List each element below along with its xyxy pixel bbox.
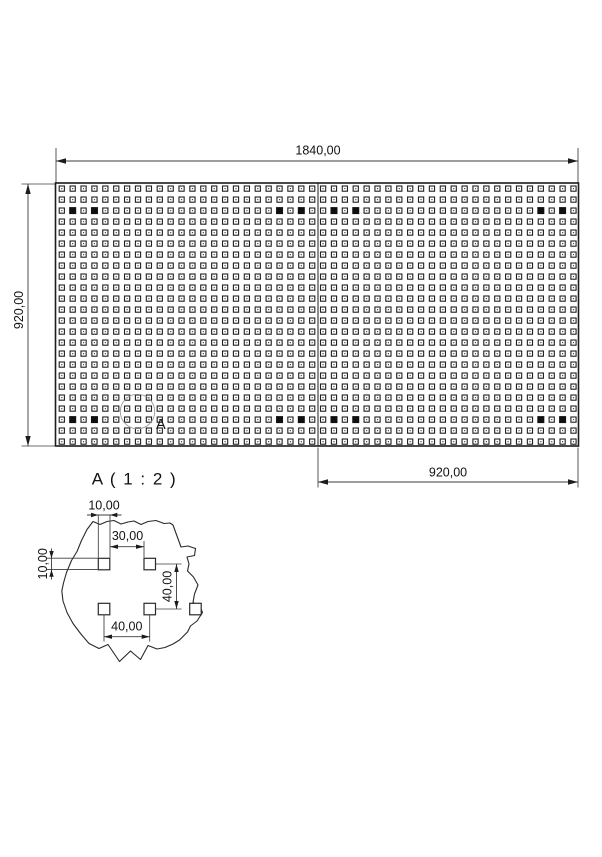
hole-center-mark [181,386,182,387]
hole-center-mark [170,232,171,233]
hole-center-mark [301,353,302,354]
hole-center-mark [442,320,443,321]
hole-center-mark [159,287,160,288]
mounting-hole [560,417,566,423]
hole-center-mark [268,419,269,420]
hole-center-mark [486,441,487,442]
hole-center-mark [355,221,356,222]
hole-center-mark [529,221,530,222]
detail-view: A ( 1 : 2 ) 10,00 30,00 [36,470,203,662]
hole-center-mark [420,430,421,431]
hole-center-mark [540,331,541,332]
hole-center-mark [366,199,367,200]
dimension-value: 40,00 [161,571,175,602]
hole-center-mark [159,441,160,442]
hole-center-mark [301,320,302,321]
hole-center-mark [442,265,443,266]
hole-center-mark [137,287,138,288]
hole-center-mark [83,375,84,376]
hole-center-mark [159,210,160,211]
hole-center-mark [246,276,247,277]
hole-center-mark [366,265,367,266]
hole-center-mark [170,210,171,211]
hole-center-mark [377,386,378,387]
hole-center-mark [61,221,62,222]
hole-center-mark [442,364,443,365]
hole-center-mark [518,199,519,200]
hole-center-mark [464,298,465,299]
hole-center-mark [214,243,215,244]
hole-center-mark [573,375,574,376]
mounting-hole [298,417,304,423]
hole-center-mark [366,397,367,398]
hole-center-mark [290,199,291,200]
hole-center-mark [420,221,421,222]
hole-center-mark [257,309,258,310]
hole-center-mark [290,342,291,343]
hole-center-mark [301,375,302,376]
hole-center-mark [268,232,269,233]
hole-center-mark [475,265,476,266]
hole-center-mark [399,243,400,244]
hole-center-mark [333,199,334,200]
hole-center-mark [355,276,356,277]
hole-center-mark [431,331,432,332]
hole-center-mark [344,386,345,387]
hole-center-mark [497,331,498,332]
hole-center-mark [83,397,84,398]
hole-center-mark [148,276,149,277]
hole-center-mark [410,364,411,365]
hole-center-mark [225,254,226,255]
hole-center-mark [486,309,487,310]
hole-center-mark [214,353,215,354]
hole-center-mark [312,430,313,431]
hole-center-mark [203,408,204,409]
hole-center-mark [518,298,519,299]
hole-center-mark [573,386,574,387]
hole-center-mark [61,309,62,310]
hole-center-mark [573,320,574,321]
hole-center-mark [116,364,117,365]
hole-center-mark [518,408,519,409]
hole-center-mark [257,199,258,200]
hole-center-mark [453,320,454,321]
hole-center-mark [355,298,356,299]
hole-center-mark [442,331,443,332]
hole-center-mark [551,199,552,200]
hole-center-mark [94,287,95,288]
hole-center-mark [508,331,509,332]
hole-center-mark [192,375,193,376]
hole-center-mark [105,364,106,365]
hole-center-mark [235,408,236,409]
hole-center-mark [344,188,345,189]
hole-center-mark [246,199,247,200]
hole-center-mark [399,232,400,233]
arrowhead-icon [142,635,150,639]
hole-center-mark [333,243,334,244]
hole-center-mark [105,254,106,255]
hole-center-mark [497,397,498,398]
hole-center-mark [540,353,541,354]
hole-center-mark [529,397,530,398]
hole-center-mark [475,232,476,233]
hole-center-mark [333,309,334,310]
hole-center-mark [529,188,530,189]
hole-center-mark [246,210,247,211]
hole-center-mark [508,276,509,277]
hole-center-mark [94,353,95,354]
technical-drawing: 1840,00 920,00 A 920,00 [0,0,602,857]
hole-center-mark [268,188,269,189]
hole-center-mark [344,375,345,376]
hole-center-mark [540,287,541,288]
hole-center-mark [312,364,313,365]
hole-center-mark [344,430,345,431]
hole-center-mark [301,441,302,442]
hole-center-mark [279,331,280,332]
detail-view-title: A ( 1 : 2 ) [92,470,177,489]
hole-center-mark [225,210,226,211]
hole-center-mark [322,430,323,431]
hole-center-mark [420,210,421,211]
hole-center-mark [399,342,400,343]
hole-center-mark [442,419,443,420]
hole-center-mark [257,254,258,255]
hole-center-mark [61,188,62,189]
hole-center-mark [573,441,574,442]
hole-center-mark [148,265,149,266]
hole-center-mark [322,221,323,222]
hole-center-mark [181,364,182,365]
dimension-value: 1840,00 [295,144,340,158]
hole-center-mark [497,419,498,420]
hole-center-mark [181,265,182,266]
hole-center-mark [431,375,432,376]
hole-center-mark [453,430,454,431]
hole-center-mark [355,364,356,365]
hole-center-mark [279,221,280,222]
hole-center-mark [61,364,62,365]
hole-center-mark [61,243,62,244]
hole-center-mark [518,188,519,189]
hole-center-mark [94,265,95,266]
hole-center-mark [420,265,421,266]
hole-center-mark [420,342,421,343]
hole-center-mark [486,232,487,233]
hole-center-mark [399,364,400,365]
hole-center-mark [159,331,160,332]
hole-center-mark [127,353,128,354]
hole-center-mark [442,408,443,409]
hole-center-mark [562,287,563,288]
hole-center-mark [312,188,313,189]
hole-center-mark [497,243,498,244]
hole-center-mark [540,386,541,387]
hole-center-mark [333,188,334,189]
hole-center-mark [214,397,215,398]
hole-center-mark [497,298,498,299]
hole-center-mark [540,441,541,442]
hole-center-mark [464,408,465,409]
hole-center-mark [377,298,378,299]
hole-center-mark [410,408,411,409]
hole-center-mark [235,188,236,189]
hole-center-mark [518,441,519,442]
dimension-value: 920,00 [12,291,26,329]
hole-center-mark [388,375,389,376]
hole-center-mark [377,375,378,376]
hole-center-mark [508,353,509,354]
hole-center-mark [116,298,117,299]
hole-center-mark [290,331,291,332]
hole-center-mark [366,254,367,255]
hole-center-mark [290,441,291,442]
hole-center-mark [529,386,530,387]
hole-center-mark [518,265,519,266]
hole-center-mark [94,232,95,233]
hole-center-mark [257,298,258,299]
hole-center-mark [257,320,258,321]
hole-center-mark [322,386,323,387]
hole-center-mark [170,386,171,387]
hole-center-mark [453,232,454,233]
hole-center-mark [388,188,389,189]
hole-center-mark [475,364,476,365]
hole-center-mark [573,309,574,310]
hole-center-mark [301,265,302,266]
hole-center-mark [442,287,443,288]
hole-center-mark [431,364,432,365]
mounting-hole [538,417,544,423]
hole-center-mark [366,221,367,222]
hole-center-mark [225,331,226,332]
hole-center-mark [94,243,95,244]
hole-center-mark [301,430,302,431]
hole-center-mark [399,353,400,354]
hole-center-mark [116,386,117,387]
hole-center-mark [366,320,367,321]
hole-center-mark [137,210,138,211]
hole-center-mark [388,342,389,343]
hole-center-mark [159,254,160,255]
hole-center-mark [464,309,465,310]
hole-center-mark [203,188,204,189]
hole-center-mark [257,441,258,442]
hole-center-mark [214,276,215,277]
hole-center-mark [529,309,530,310]
hole-center-mark [116,441,117,442]
hole-center-mark [497,276,498,277]
hole-center-mark [388,320,389,321]
hole-center-mark [355,408,356,409]
hole-center-mark [464,287,465,288]
hole-center-mark [290,232,291,233]
hole-center-mark [181,320,182,321]
hole-center-mark [94,298,95,299]
hole-center-mark [246,320,247,321]
hole-center-mark [333,232,334,233]
hole-center-mark [562,265,563,266]
hole-center-mark [562,232,563,233]
hole-center-mark [246,188,247,189]
hole-center-mark [322,364,323,365]
hole-center-mark [137,408,138,409]
hole-center-mark [83,221,84,222]
hole-center-mark [551,320,552,321]
hole-center-mark [257,386,258,387]
hole-center-mark [377,364,378,365]
hole-center-mark [312,232,313,233]
hole-center-mark [225,408,226,409]
hole-center-mark [83,276,84,277]
hole-center-mark [420,287,421,288]
hole-center-mark [137,265,138,266]
hole-center-mark [214,386,215,387]
hole-center-mark [497,254,498,255]
hole-center-mark [83,199,84,200]
hole-center-mark [301,221,302,222]
hole-center-mark [192,309,193,310]
hole-center-mark [344,243,345,244]
hole-center-mark [497,386,498,387]
hole-center-mark [225,364,226,365]
hole-center-mark [279,320,280,321]
hole-center-mark [529,287,530,288]
hole-center-mark [279,309,280,310]
hole-center-mark [105,199,106,200]
hole-center-mark [344,397,345,398]
hole-center-mark [225,353,226,354]
hole-center-mark [420,419,421,420]
hole-center-mark [508,309,509,310]
hole-center-mark [442,342,443,343]
hole-center-mark [105,441,106,442]
hole-center-mark [431,386,432,387]
hole-center-mark [399,188,400,189]
hole-center-mark [518,386,519,387]
hole-center-mark [420,243,421,244]
hole-center-mark [137,243,138,244]
hole-center-mark [301,397,302,398]
hole-center-mark [410,243,411,244]
hole-center-mark [290,364,291,365]
hole-center-mark [137,430,138,431]
mounting-hole [70,417,76,423]
hole-center-mark [529,298,530,299]
hole-center-mark [355,232,356,233]
hole-center-mark [170,441,171,442]
hole-center-mark [442,386,443,387]
hole-center-mark [170,397,171,398]
dimension-hole-gap: 30,00 [110,529,144,558]
dimension-horizontal-pitch: 40,00 [104,615,150,641]
hole-center-mark [529,232,530,233]
hole-center-mark [94,386,95,387]
hole-center-mark [312,331,313,332]
hole-center-mark [83,386,84,387]
hole-center-mark [137,375,138,376]
mounting-hole [277,208,283,214]
mounting-hole [91,208,97,214]
hole-center-mark [366,353,367,354]
hole-center-mark [551,276,552,277]
hole-center-mark [235,386,236,387]
hole-center-mark [312,353,313,354]
hole-center-mark [301,386,302,387]
hole-center-mark [420,309,421,310]
hole-center-mark [562,199,563,200]
hole-center-mark [127,221,128,222]
hole-center-mark [529,353,530,354]
hole-center-mark [83,243,84,244]
hole-center-mark [279,441,280,442]
hole-center-mark [203,375,204,376]
hole-center-mark [551,430,552,431]
hole-center-mark [279,298,280,299]
hole-center-mark [268,265,269,266]
hole-center-mark [529,254,530,255]
hole-center-mark [94,430,95,431]
hole-center-mark [453,419,454,420]
hole-center-mark [105,331,106,332]
hole-center-mark [83,408,84,409]
hole-center-mark [257,353,258,354]
hole-center-mark [181,221,182,222]
hole-center-mark [486,254,487,255]
hole-center-mark [333,408,334,409]
hole-center-mark [377,199,378,200]
hole-center-mark [551,309,552,310]
mounting-hole [298,208,304,214]
hole-center-mark [105,188,106,189]
hole-center-mark [573,265,574,266]
hole-center-mark [214,419,215,420]
hole-center-mark [137,441,138,442]
hole-center-mark [410,188,411,189]
hole-center-mark [399,221,400,222]
hole-center-mark [127,375,128,376]
hole-center-mark [475,243,476,244]
hole-center-mark [529,408,530,409]
hole-center-mark [453,441,454,442]
hole-center-mark [508,287,509,288]
hole-center-mark [508,408,509,409]
hole-center-mark [148,188,149,189]
hole-center-mark [246,331,247,332]
hole-center-mark [551,386,552,387]
hole-center-mark [235,353,236,354]
hole-center-mark [366,419,367,420]
hole-center-mark [61,199,62,200]
hole-center-mark [573,397,574,398]
hole-center-mark [529,320,530,321]
hole-center-mark [312,342,313,343]
hole-center-mark [268,364,269,365]
hole-center-mark [148,375,149,376]
arrowhead-icon [104,635,112,639]
hole-center-mark [72,408,73,409]
hole-center-mark [312,199,313,200]
hole-center-mark [486,243,487,244]
hole-center-mark [159,276,160,277]
hole-center-mark [377,353,378,354]
hole-center-mark [225,298,226,299]
hole-center-mark [170,364,171,365]
hole-center-mark [268,298,269,299]
hole-center-mark [551,254,552,255]
